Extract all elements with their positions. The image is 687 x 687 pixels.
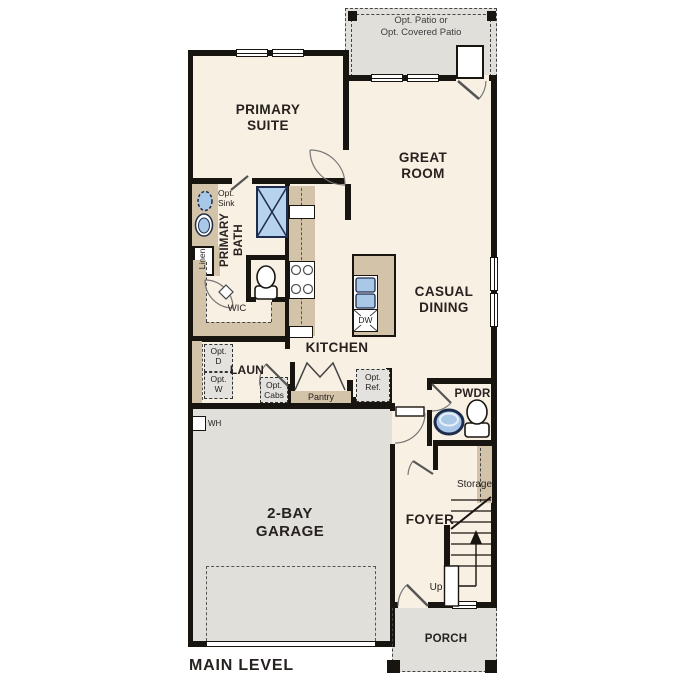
room-label-garage: 2-BAY GARAGE [215, 505, 365, 542]
label-dw: DW [353, 315, 378, 325]
wall [444, 525, 450, 574]
wall [427, 410, 432, 446]
window [236, 49, 268, 57]
wic-shelf [193, 322, 285, 336]
wall [188, 50, 348, 56]
wall [390, 403, 395, 411]
wall [427, 378, 497, 384]
room-label-wic: WIC [209, 303, 265, 315]
storage-rod-line [480, 448, 481, 502]
window [371, 74, 403, 82]
wall [345, 184, 351, 220]
label-up: Up [423, 582, 449, 594]
shower [256, 186, 288, 238]
porch-post [387, 660, 400, 673]
plan-title: MAIN LEVEL [189, 656, 309, 676]
room-label-storage: Storage [450, 479, 499, 491]
wall-oven [289, 205, 315, 219]
garage-door-apron [206, 566, 376, 641]
window [272, 49, 304, 57]
label-wh: WH [208, 419, 228, 429]
room-label-kitchen: KITCHEN [295, 340, 379, 356]
base-cabinet [289, 326, 313, 338]
water-heater [192, 416, 206, 431]
room-label-primary-bath: PRIMARY BATH [218, 208, 248, 272]
laundry-counter [192, 341, 202, 403]
wic-shelf [271, 302, 285, 322]
island-sink-counter [353, 275, 378, 310]
room-label-primary-suite: PRIMARY SUITE [198, 102, 338, 135]
room-label-foyer: FOYER [399, 512, 461, 528]
label-opt-ref: Opt. Ref. [356, 372, 390, 393]
room-label-patio: Opt. Patio or Opt. Covered Patio [347, 15, 495, 38]
label-opt-d: Opt. D [204, 346, 233, 367]
label-opt-cabs: Opt. Cabs [260, 380, 288, 401]
wall [285, 341, 290, 349]
patio-stoop [456, 45, 484, 79]
laundry-counter-edge [202, 344, 203, 400]
room-label-porch: PORCH [413, 632, 479, 646]
wall [427, 384, 432, 390]
label-opt-sink: Opt. Sink [218, 188, 250, 209]
wall [252, 178, 345, 184]
room-label-casual-dining: CASUAL DINING [390, 284, 498, 317]
wall [433, 446, 438, 470]
wall [188, 336, 290, 342]
wic-shelf-line [206, 322, 271, 323]
room-label-pwdr: PWDR [448, 387, 497, 401]
wall [343, 50, 349, 150]
bath-vanity [192, 184, 218, 246]
wall [491, 75, 497, 608]
room-label-great-room: GREAT ROOM [355, 150, 491, 183]
garage-door-band [207, 641, 375, 647]
wic-shelf-line [271, 302, 272, 322]
wall [246, 255, 290, 260]
label-pantry: Pantry [291, 392, 351, 403]
porch-post [485, 660, 497, 673]
label-opt-w: Opt. W [204, 374, 233, 395]
range [289, 261, 315, 299]
floor-plan: Opt. Patio or Opt. Covered Patio PRIMARY… [0, 0, 687, 687]
label-linen: Linen [197, 242, 209, 276]
window [407, 74, 439, 82]
